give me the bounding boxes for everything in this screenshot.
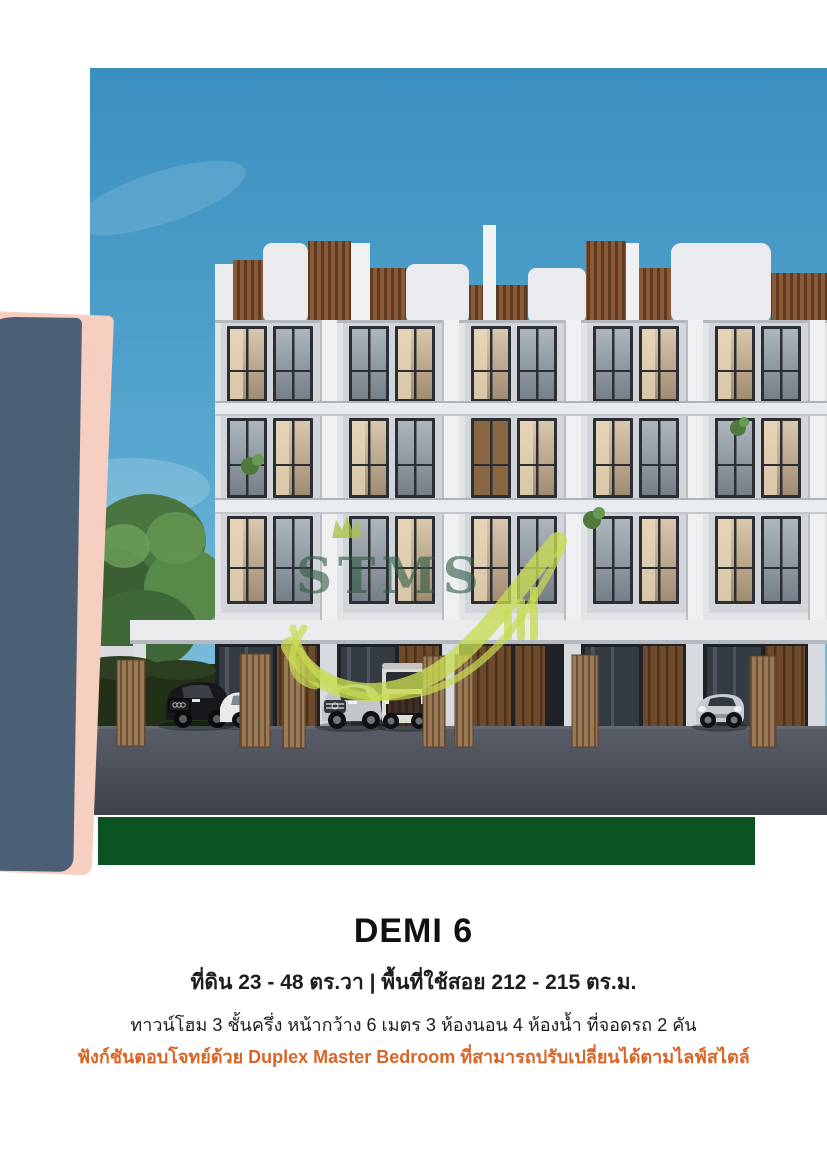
land-area-line: ที่ดิน 23 - 48 ตร.วา | พื้นที่ใช้สอย 212…: [0, 966, 827, 999]
page-title: DEMI 6: [0, 912, 827, 951]
watermark-text: STMS: [296, 546, 485, 605]
brochure-page: STMS DEMI 6 ที่ดิน 23 - 48 ตร.วา | พื้นท…: [0, 0, 827, 1170]
green-accent-strip: [98, 817, 755, 865]
highlight-line: ฟังก์ชันตอบโจทย์ด้วย Duplex Master Bedro…: [0, 1042, 827, 1071]
wood-door: [643, 646, 683, 728]
hedge: [144, 660, 216, 680]
spec-line: ทาวน์โฮม 3 ชั้นครึ่ง หน้ากว้าง 6 เมตร 3 …: [0, 1010, 827, 1039]
building-scene: STMS: [90, 68, 827, 815]
navy-accent-shape: [0, 316, 82, 872]
hero-photo: STMS: [90, 68, 827, 815]
